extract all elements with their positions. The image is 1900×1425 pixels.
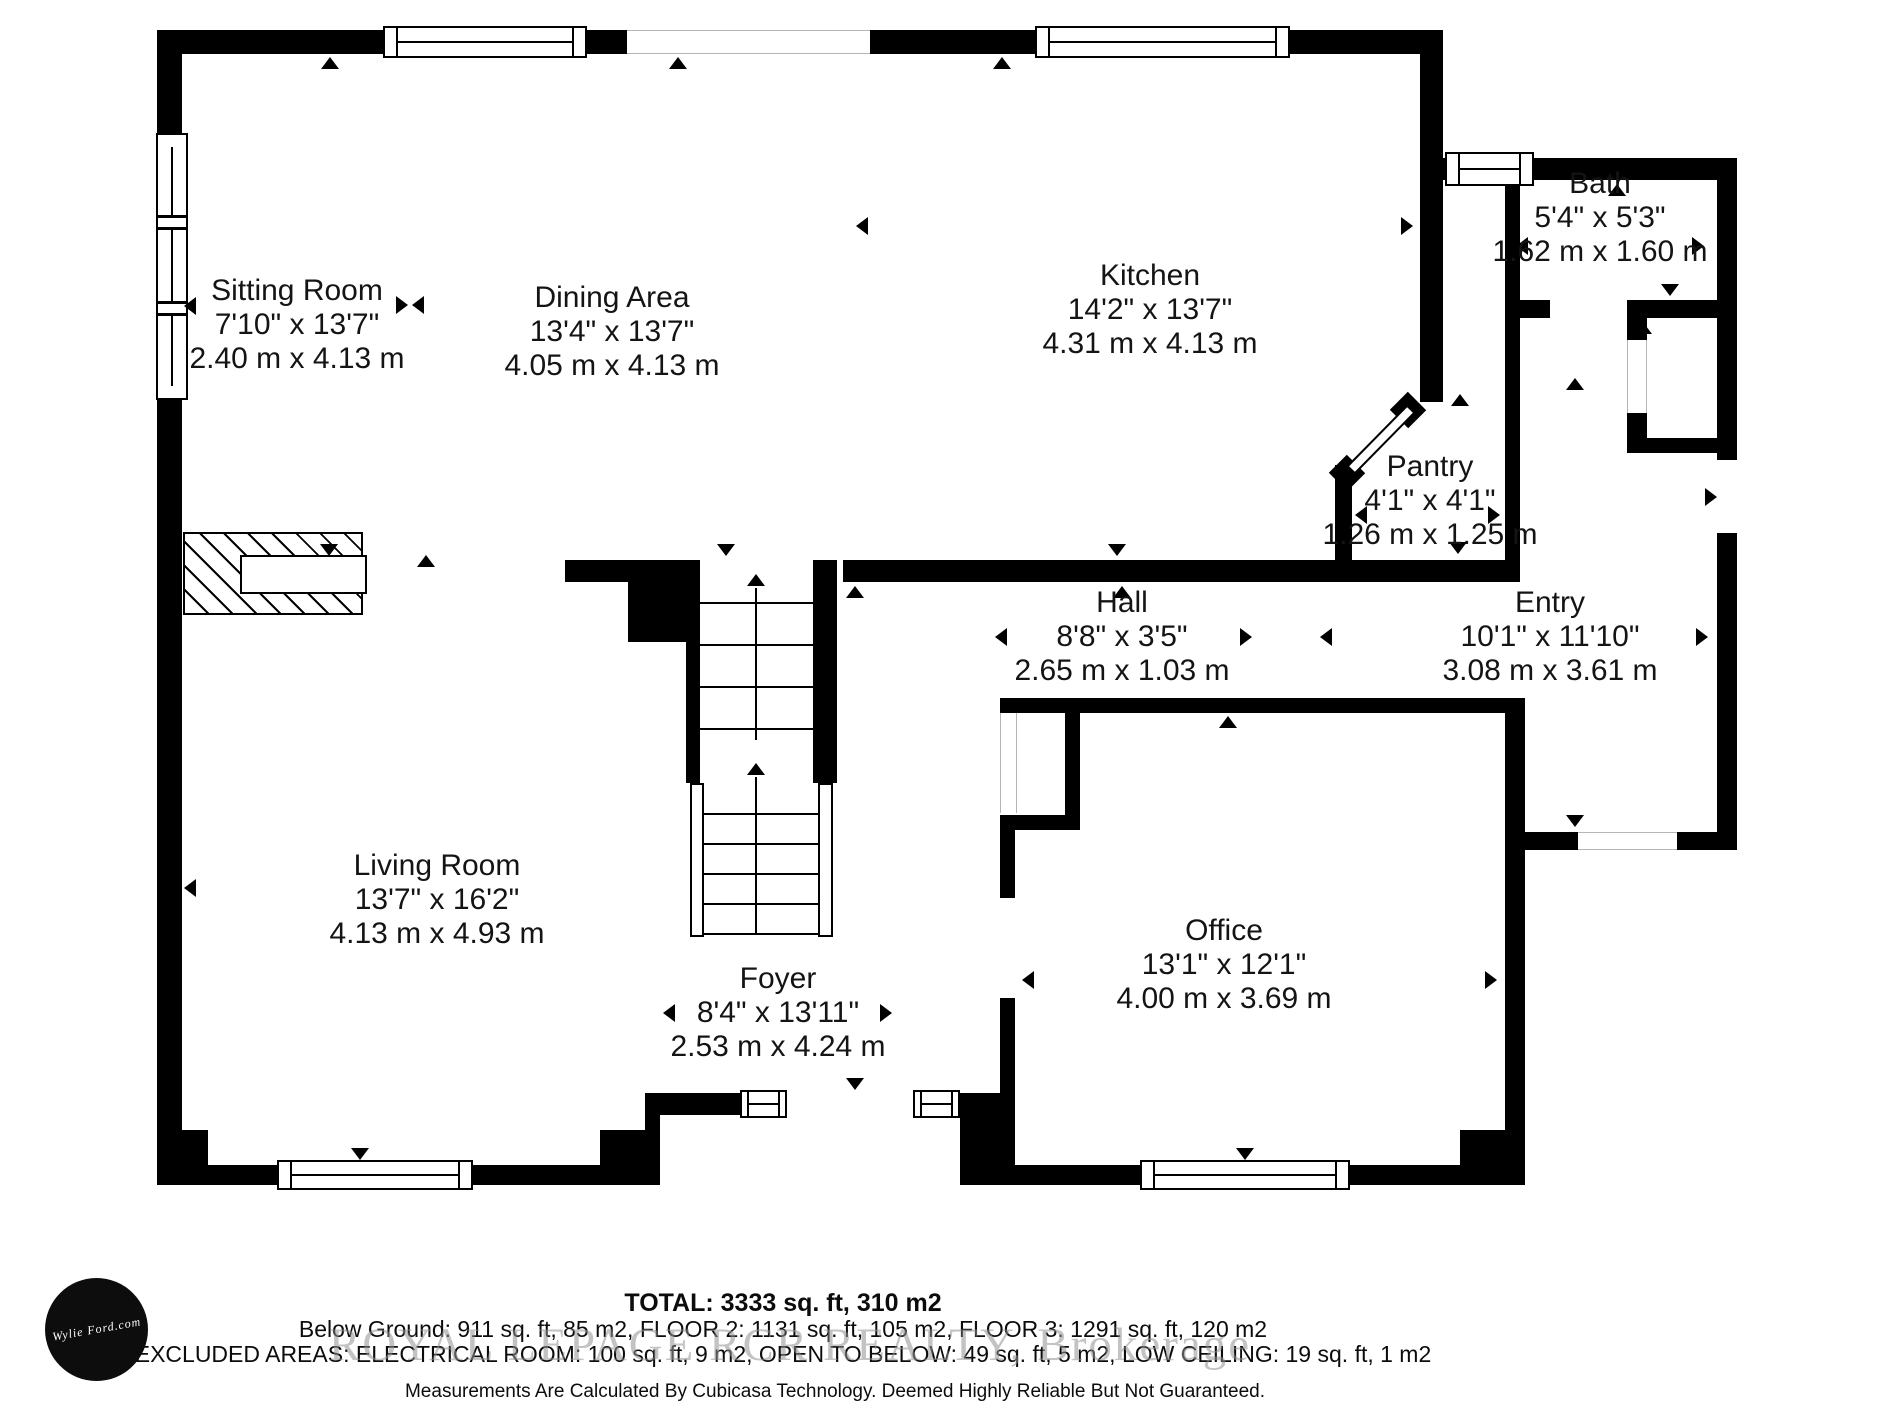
floor-plan: Sitting Room 7'10" x 13'7" 2.40 m x 4.13… (0, 0, 1900, 1425)
measure-arrow (846, 1078, 864, 1090)
room-name: Dining Area (504, 281, 719, 315)
measure-arrow (320, 544, 338, 556)
measure-arrow (412, 296, 424, 314)
measure-arrow (184, 879, 196, 897)
measure-arrow (995, 628, 1007, 646)
room-name: Foyer (670, 962, 885, 996)
room-label-office: Office 13'1" x 12'1" 4.00 m x 3.69 m (1116, 914, 1331, 1016)
room-dims-metric: 1.26 m x 1.25 m (1322, 518, 1537, 552)
measure-arrow (1566, 815, 1584, 827)
brokerage-watermark: ROYAL LEPAGE RCR REALTY, Brokerage (329, 1318, 1251, 1372)
room-label-bath: Bath 5'4" x 5'3" 1.62 m x 1.60 m (1492, 167, 1707, 269)
room-name: Pantry (1322, 450, 1537, 484)
room-dims-imperial: 13'4" x 13'7" (504, 315, 719, 349)
measure-arrow (1022, 971, 1034, 989)
room-name: Entry (1442, 586, 1657, 620)
measure-arrow (321, 57, 339, 69)
room-name: Living Room (329, 849, 544, 883)
window (156, 133, 188, 400)
measure-arrow (351, 1148, 369, 1160)
room-name: Sitting Room (189, 274, 404, 308)
room-label-foyer: Foyer 8'4" x 13'11" 2.53 m x 4.24 m (670, 962, 885, 1064)
room-dims-metric: 2.40 m x 4.13 m (189, 342, 404, 376)
footer-disclaimer: Measurements Are Calculated By Cubicasa … (405, 1381, 1265, 1403)
measure-arrow (1401, 217, 1413, 235)
room-label-living: Living Room 13'7" x 16'2" 4.13 m x 4.93 … (329, 849, 544, 951)
window (1035, 26, 1290, 58)
measure-arrow (417, 555, 435, 567)
room-label-kitchen: Kitchen 14'2" x 13'7" 4.31 m x 4.13 m (1042, 259, 1257, 361)
room-label-dining: Dining Area 13'4" x 13'7" 4.05 m x 4.13 … (504, 281, 719, 383)
measure-arrow (1219, 716, 1237, 728)
room-label-sitting: Sitting Room 7'10" x 13'7" 2.40 m x 4.13… (189, 274, 404, 376)
window (277, 1160, 473, 1190)
measure-arrow (717, 544, 735, 556)
room-dims-imperial: 13'7" x 16'2" (329, 883, 544, 917)
room-dims-metric: 3.08 m x 3.61 m (1442, 654, 1657, 688)
measure-arrow (1696, 628, 1708, 646)
measure-arrow (1485, 971, 1497, 989)
room-dims-imperial: 4'1" x 4'1" (1322, 484, 1537, 518)
room-name: Bath (1492, 167, 1707, 201)
room-label-hall: Hall 8'8" x 3'5" 2.65 m x 1.03 m (1014, 586, 1229, 688)
room-dims-metric: 4.05 m x 4.13 m (504, 349, 719, 383)
room-dims-imperial: 8'8" x 3'5" (1014, 620, 1229, 654)
room-dims-metric: 2.65 m x 1.03 m (1014, 654, 1229, 688)
photographer-logo: Wylie Ford.com (45, 1278, 148, 1381)
room-name: Kitchen (1042, 259, 1257, 293)
room-dims-imperial: 14'2" x 13'7" (1042, 293, 1257, 327)
measure-arrow (1320, 628, 1332, 646)
logo-script-text: Wylie Ford.com (51, 1314, 142, 1344)
room-name: Office (1116, 914, 1331, 948)
measure-arrow (993, 57, 1011, 69)
measure-arrow (1705, 488, 1717, 506)
measure-arrow (856, 217, 868, 235)
window-sidelight (740, 1090, 787, 1118)
stairs-up-arrow (747, 574, 765, 586)
measure-arrow (1236, 1148, 1254, 1160)
measure-arrow (1108, 544, 1126, 556)
room-dims-imperial: 7'10" x 13'7" (189, 308, 404, 342)
room-dims-imperial: 8'4" x 13'11" (670, 996, 885, 1030)
room-label-entry: Entry 10'1" x 11'10" 3.08 m x 3.61 m (1442, 586, 1657, 688)
room-label-pantry: Pantry 4'1" x 4'1" 1.26 m x 1.25 m (1322, 450, 1537, 552)
measure-arrow (1634, 322, 1652, 334)
room-dims-imperial: 13'1" x 12'1" (1116, 948, 1331, 982)
measure-arrow (1451, 394, 1469, 406)
measure-arrow (1566, 378, 1584, 390)
measure-arrow (1240, 628, 1252, 646)
measure-arrow (669, 57, 687, 69)
room-name: Hall (1014, 586, 1229, 620)
room-dims-imperial: 5'4" x 5'3" (1492, 201, 1707, 235)
measure-arrow (846, 586, 864, 598)
room-dims-metric: 4.31 m x 4.13 m (1042, 327, 1257, 361)
room-dims-metric: 4.00 m x 3.69 m (1116, 982, 1331, 1016)
window (1140, 1160, 1350, 1190)
measure-arrow (1661, 284, 1679, 296)
room-dims-imperial: 10'1" x 11'10" (1442, 620, 1657, 654)
window-sidelight (913, 1090, 960, 1118)
room-dims-metric: 4.13 m x 4.93 m (329, 917, 544, 951)
window (383, 26, 587, 58)
room-dims-metric: 1.62 m x 1.60 m (1492, 235, 1707, 269)
footer-total: TOTAL: 3333 sq. ft, 310 m2 (624, 1289, 941, 1318)
stairs-up-arrow (747, 763, 765, 775)
room-dims-metric: 2.53 m x 4.24 m (670, 1030, 885, 1064)
